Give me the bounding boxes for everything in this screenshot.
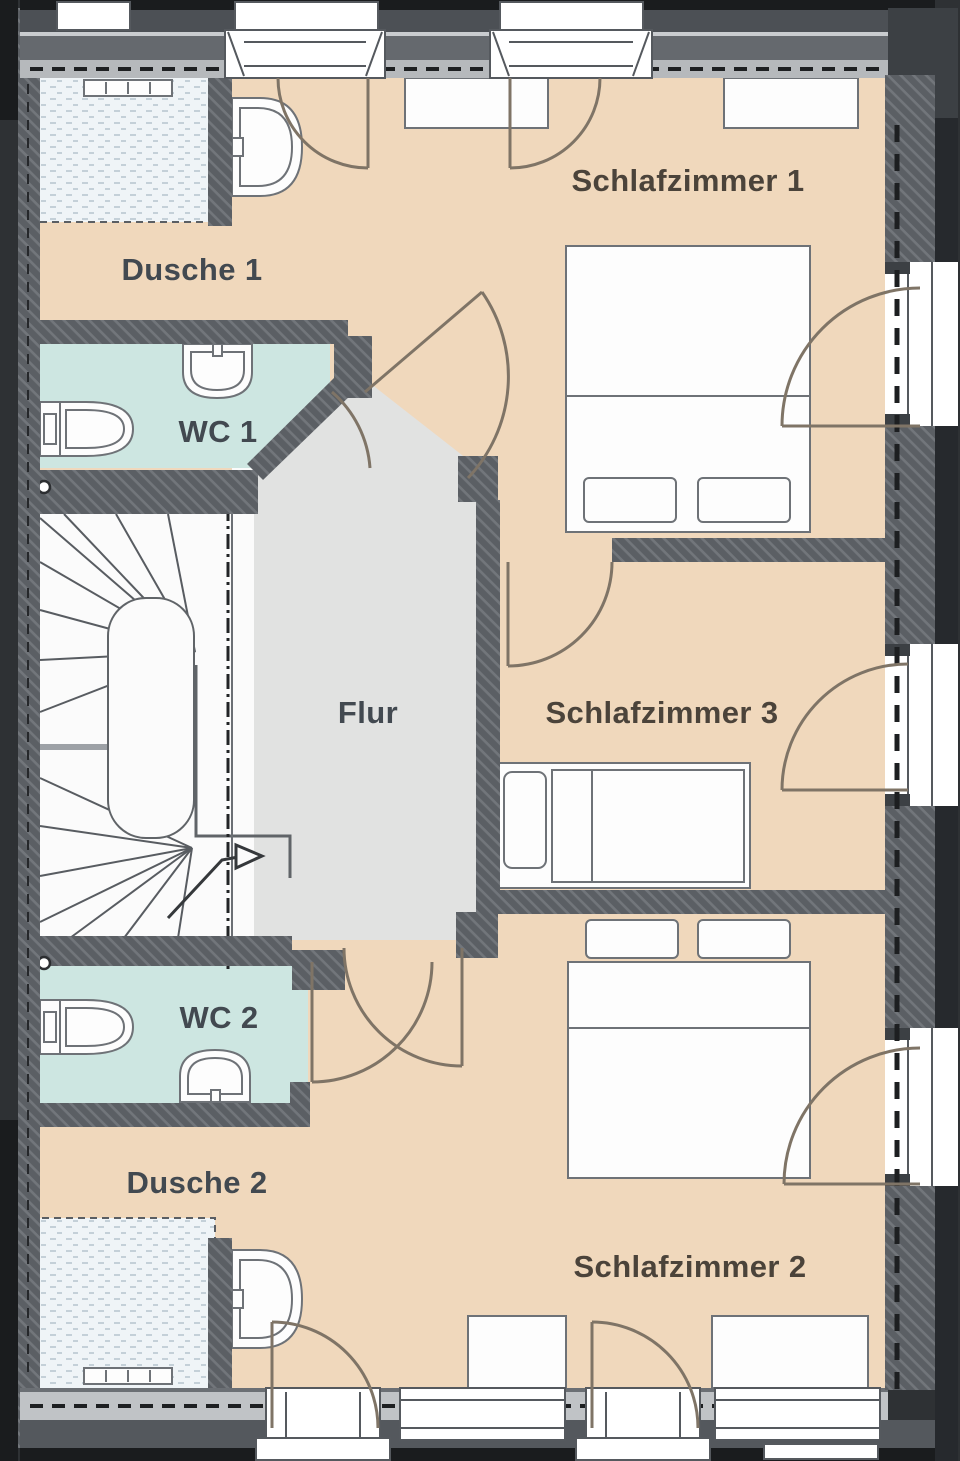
window-sill-bottom-2: [576, 1438, 710, 1460]
room-label-schlafzimmer2: Schlafzimmer 2: [573, 1249, 806, 1285]
wardrobe-schlafzimmer1-right: [724, 78, 858, 128]
sink-icon-dusche2: [232, 1250, 302, 1348]
window-door-unit-top-2: [490, 2, 652, 78]
sideboard-schlafzimmer2-left: [468, 1316, 566, 1388]
window-sill-bottom-3: [764, 1444, 878, 1459]
double-bed-schlafzimmer1: [566, 246, 810, 532]
flur-floor: [252, 380, 476, 940]
room-label-wc1: WC 1: [178, 414, 257, 450]
window-bottom-2: [715, 1388, 880, 1440]
window-right-schlafzimmer3: [885, 644, 958, 806]
room-label-dusche2: Dusche 2: [126, 1165, 267, 1201]
window-right-schlafzimmer2: [885, 1028, 958, 1186]
single-bed-schlafzimmer3: [498, 763, 750, 888]
floorplan-upper-floor: Schlafzimmer 1 Dusche 1 WC 1 Flur Schlaf…: [0, 0, 960, 1461]
sink-icon-wc1: [183, 344, 252, 398]
toilet-icon-wc2: [40, 1000, 133, 1054]
window-bottom-1: [400, 1388, 565, 1440]
stair-wellhole: [108, 598, 194, 838]
sink-icon-wc2: [180, 1050, 250, 1102]
shower-area-dusche2: [40, 1218, 215, 1388]
sink-icon-dusche1: [232, 98, 302, 196]
window-sill-bottom-1: [256, 1438, 390, 1460]
room-label-flur: Flur: [338, 695, 398, 731]
room-label-wc2: WC 2: [179, 1000, 258, 1036]
wardrobe-schlafzimmer1-left: [405, 78, 548, 128]
sideboard-schlafzimmer2-right: [712, 1316, 868, 1388]
toilet-icon-wc1: [40, 402, 133, 456]
shower-area-dusche1: [40, 78, 215, 222]
room-label-schlafzimmer1: Schlafzimmer 1: [571, 163, 804, 199]
room-label-schlafzimmer3: Schlafzimmer 3: [545, 695, 778, 731]
room-label-dusche1: Dusche 1: [121, 252, 262, 288]
floorplan-drawing: [0, 0, 960, 1461]
